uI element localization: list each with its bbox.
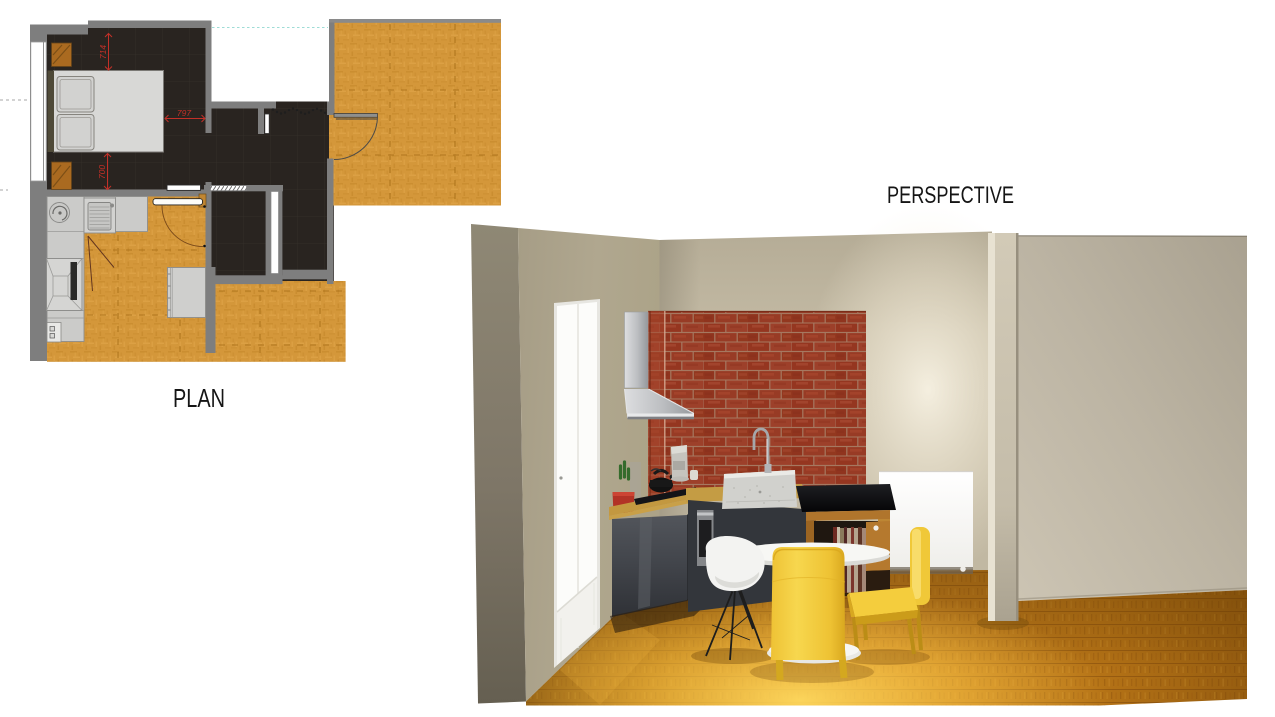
- svg-text:PLAN: PLAN: [173, 383, 225, 413]
- svg-text:797: 797: [177, 108, 191, 118]
- svg-text:714: 714: [98, 45, 108, 59]
- svg-text:PERSPECTIVE: PERSPECTIVE: [887, 182, 1014, 209]
- svg-text:700: 700: [97, 165, 107, 179]
